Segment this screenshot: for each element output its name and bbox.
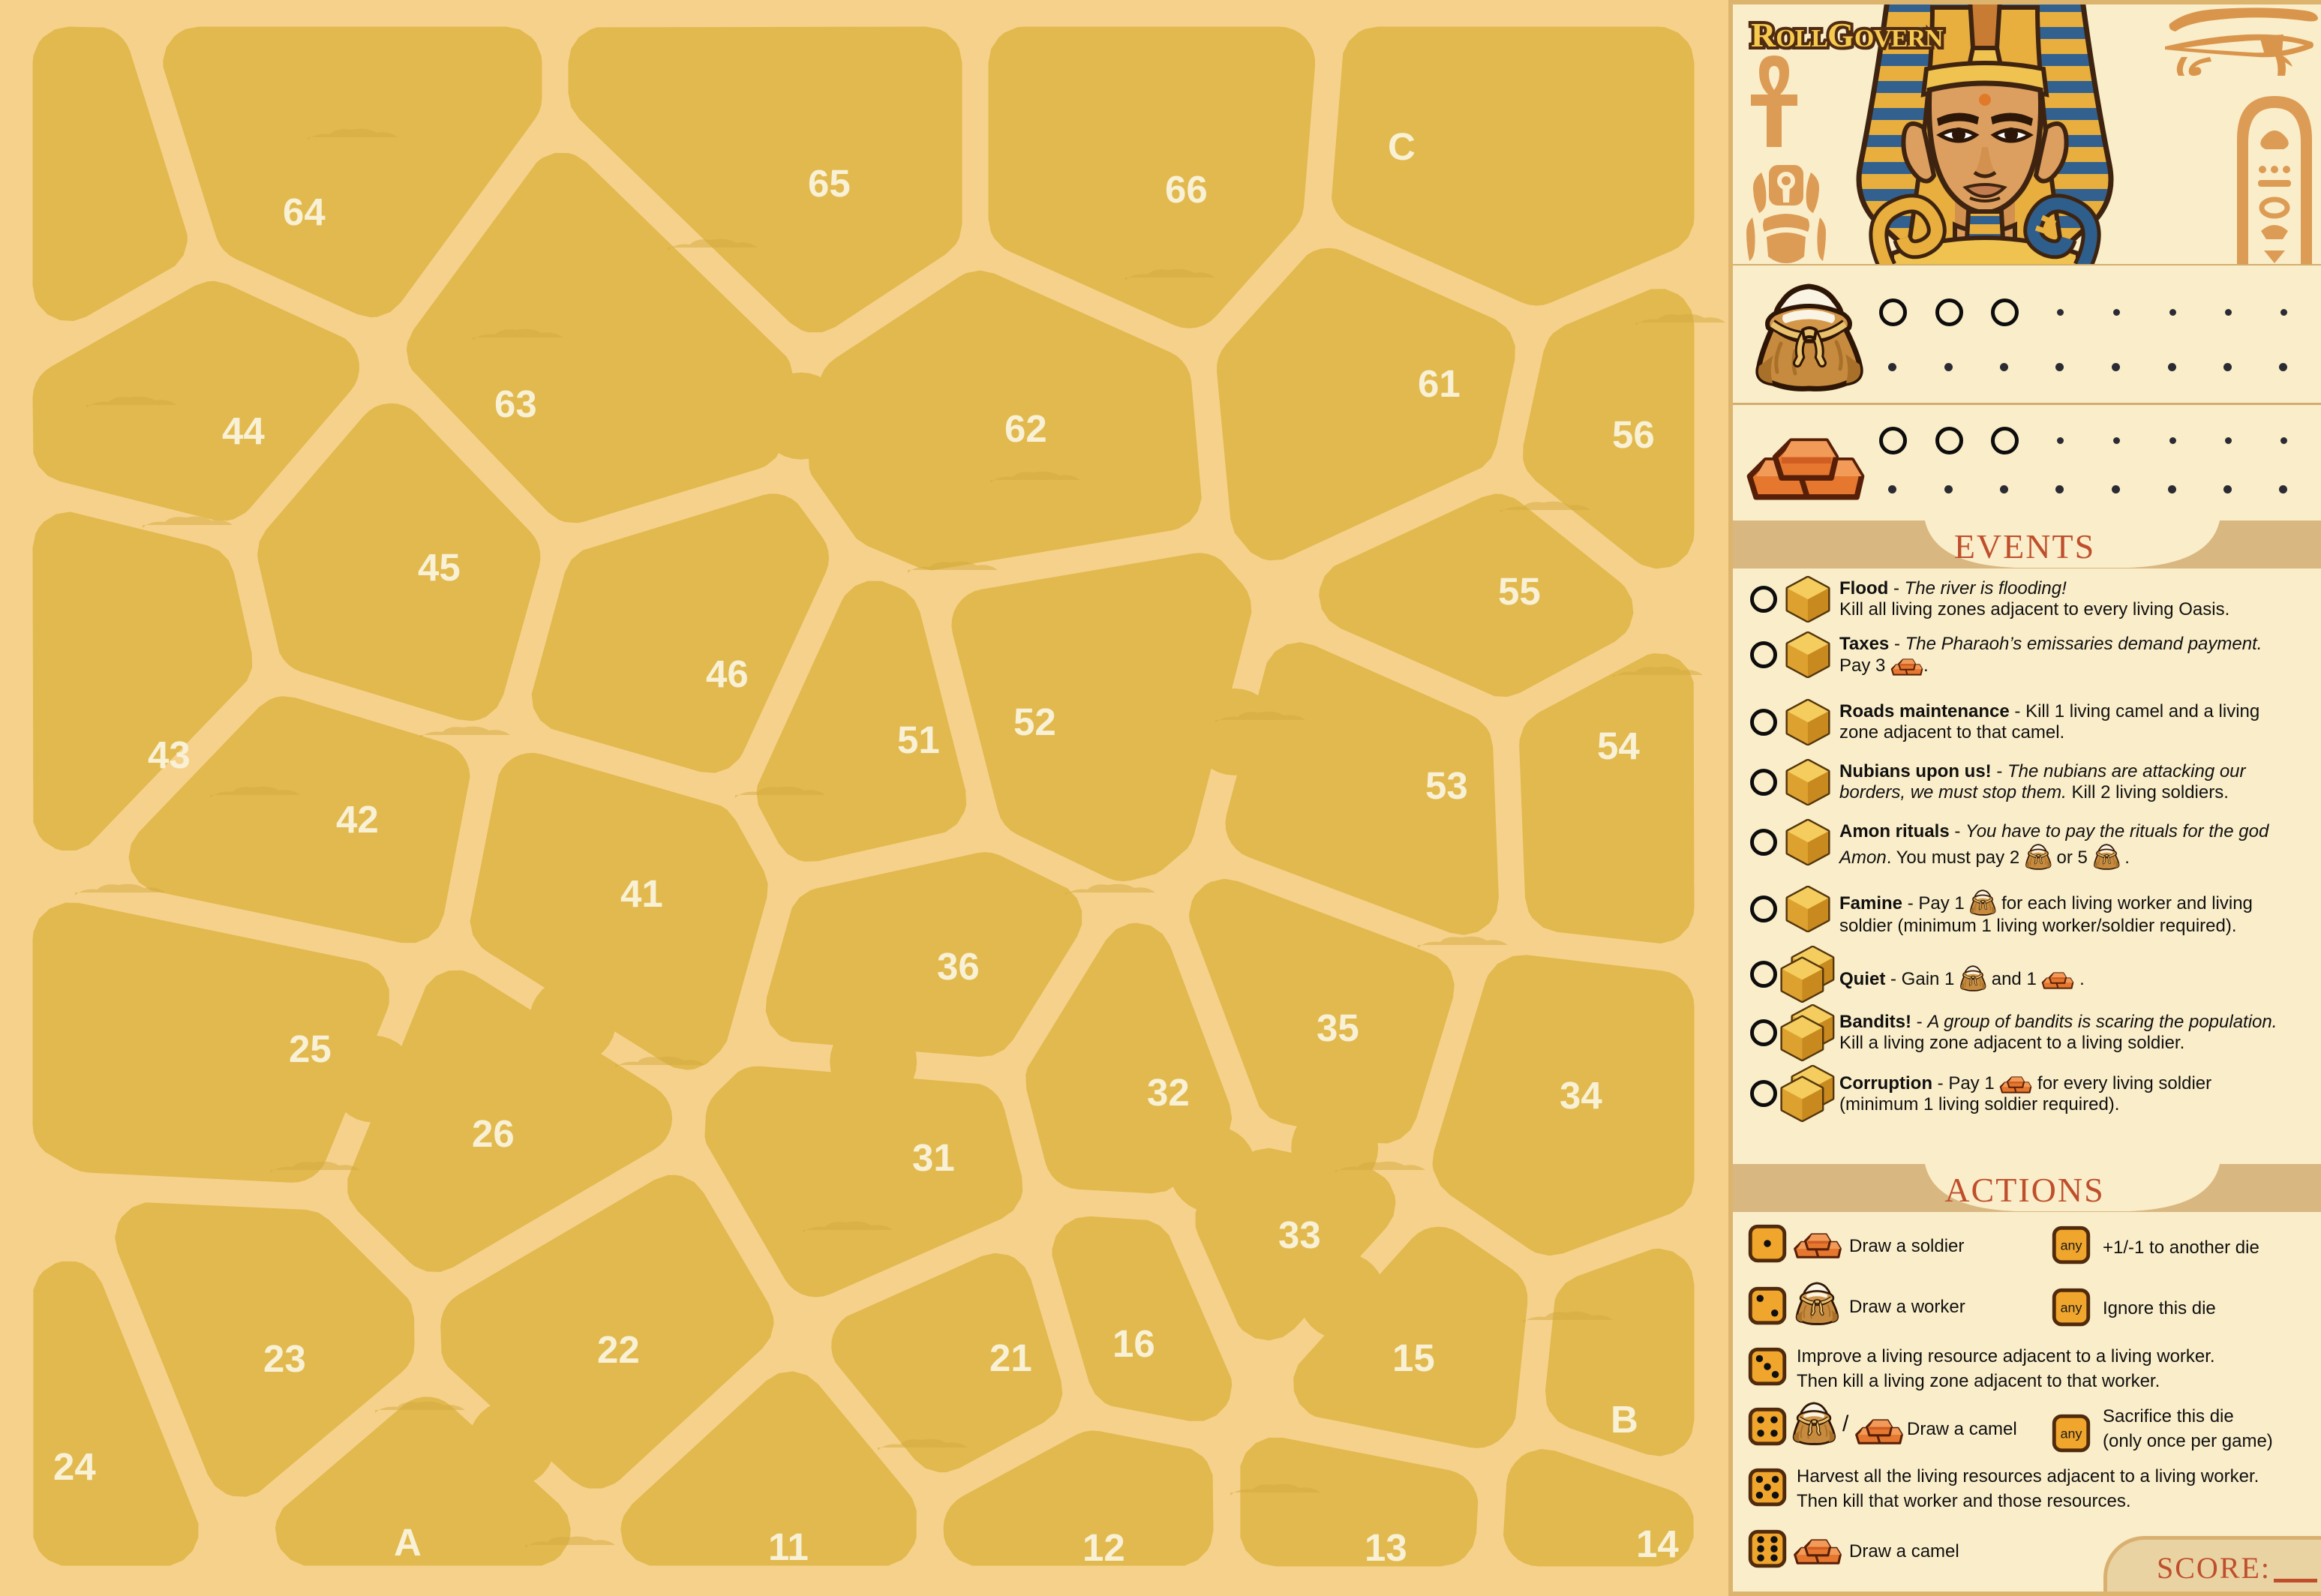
svg-text:C: C [1388, 125, 1416, 168]
svg-text:14: 14 [1636, 1522, 1679, 1565]
svg-text:35: 35 [1317, 1006, 1359, 1049]
svg-text:22: 22 [597, 1328, 640, 1371]
svg-text:56: 56 [1612, 413, 1655, 456]
svg-text:13: 13 [1365, 1526, 1407, 1569]
svg-text:23: 23 [263, 1337, 306, 1380]
svg-text:55: 55 [1498, 570, 1541, 613]
svg-text:64: 64 [283, 190, 326, 233]
svg-text:36: 36 [937, 945, 980, 988]
svg-text:41: 41 [620, 872, 663, 915]
svg-text:24: 24 [53, 1445, 96, 1488]
svg-text:A: A [394, 1521, 422, 1564]
svg-text:26: 26 [472, 1112, 515, 1155]
svg-text:52: 52 [1013, 700, 1056, 743]
svg-text:12: 12 [1082, 1526, 1125, 1569]
svg-text:16: 16 [1112, 1322, 1155, 1365]
svg-text:61: 61 [1418, 362, 1461, 405]
svg-text:66: 66 [1165, 168, 1208, 211]
svg-text:53: 53 [1425, 764, 1468, 807]
svg-text:43: 43 [148, 733, 191, 776]
svg-text:25: 25 [289, 1027, 332, 1070]
svg-text:65: 65 [808, 162, 851, 205]
svg-text:32: 32 [1147, 1071, 1190, 1114]
svg-text:54: 54 [1597, 724, 1640, 767]
svg-text:45: 45 [418, 546, 461, 589]
svg-text:15: 15 [1392, 1336, 1435, 1379]
svg-text:63: 63 [494, 382, 537, 425]
svg-text:46: 46 [706, 652, 749, 695]
svg-text:33: 33 [1278, 1213, 1321, 1256]
svg-text:11: 11 [768, 1525, 809, 1568]
svg-text:62: 62 [1004, 407, 1047, 450]
svg-text:31: 31 [912, 1136, 955, 1179]
svg-text:21: 21 [989, 1336, 1032, 1379]
svg-text:44: 44 [222, 409, 265, 452]
svg-text:34: 34 [1560, 1074, 1602, 1117]
svg-text:B: B [1611, 1398, 1638, 1441]
svg-text:51: 51 [897, 718, 940, 761]
svg-text:42: 42 [336, 798, 379, 841]
